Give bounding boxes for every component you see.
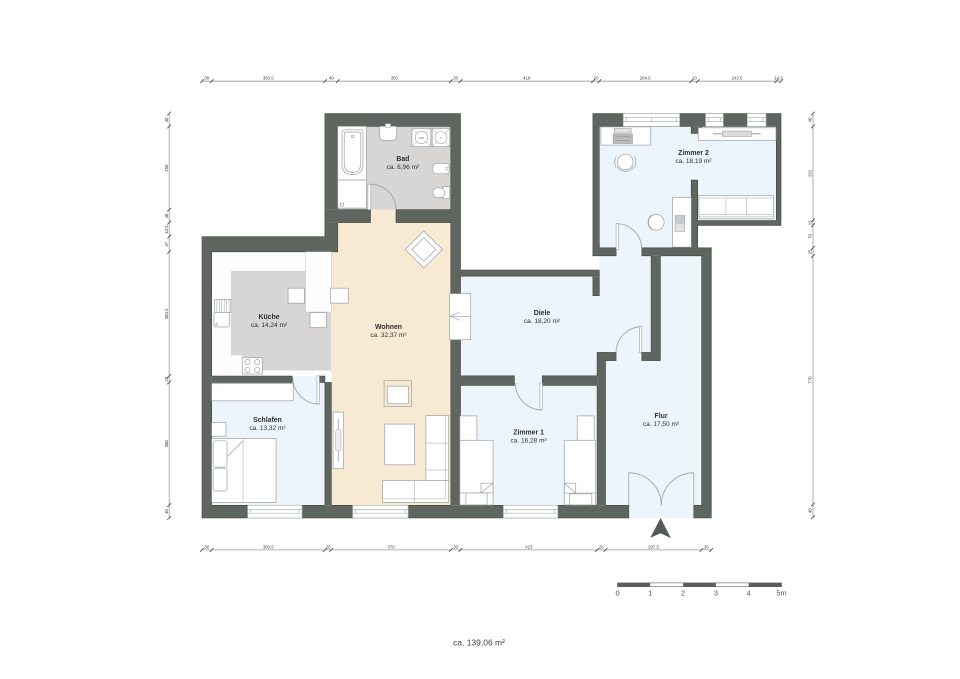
svg-text:30: 30	[453, 76, 458, 81]
svg-text:Flur: Flur	[654, 413, 667, 420]
svg-text:2: 2	[681, 589, 685, 598]
svg-text:291: 291	[807, 169, 812, 177]
svg-text:26: 26	[599, 544, 604, 549]
svg-text:30: 30	[704, 544, 709, 549]
svg-text:30: 30	[204, 76, 209, 81]
svg-text:20: 20	[692, 76, 697, 81]
svg-text:70: 70	[807, 234, 812, 239]
svg-text:ca. 14,24 m²: ca. 14,24 m²	[251, 322, 288, 329]
svg-text:Zimmer 1: Zimmer 1	[513, 430, 544, 437]
svg-text:350: 350	[391, 76, 399, 81]
svg-text:ca. 13,32 m²: ca. 13,32 m²	[249, 425, 286, 432]
svg-text:40: 40	[807, 117, 812, 122]
svg-text:ca. 17,50 m²: ca. 17,50 m²	[643, 421, 680, 428]
svg-text:40: 40	[807, 508, 812, 513]
svg-text:Bad: Bad	[396, 156, 409, 163]
svg-text:Zimmer 2: Zimmer 2	[678, 150, 709, 157]
svg-text:20: 20	[594, 76, 599, 81]
svg-text:40: 40	[164, 509, 169, 514]
svg-text:370: 370	[388, 544, 396, 549]
svg-text:423: 423	[525, 544, 533, 549]
svg-text:43.5: 43.5	[164, 225, 169, 234]
svg-text:25: 25	[807, 249, 812, 254]
svg-text:20: 20	[326, 544, 331, 549]
svg-text:380: 380	[164, 440, 169, 448]
svg-text:30: 30	[453, 544, 458, 549]
svg-text:T: T	[440, 136, 442, 140]
svg-text:297.5: 297.5	[648, 544, 659, 549]
svg-text:40: 40	[164, 117, 169, 122]
svg-text:384.5: 384.5	[164, 308, 169, 319]
svg-text:5m: 5m	[776, 589, 786, 598]
svg-text:0: 0	[615, 589, 619, 598]
svg-text:ca. 16,28 m²: ca. 16,28 m²	[511, 438, 548, 445]
svg-text:ca. 32,37 m²: ca. 32,37 m²	[370, 332, 407, 339]
svg-text:410: 410	[523, 76, 531, 81]
svg-text:243.5: 243.5	[732, 76, 743, 81]
svg-text:Schlafen: Schlafen	[253, 417, 282, 424]
svg-text:Wohnen: Wohnen	[375, 324, 402, 331]
svg-text:258: 258	[164, 164, 169, 172]
svg-text:1: 1	[648, 589, 652, 598]
svg-text:40: 40	[329, 76, 334, 81]
svg-text:40: 40	[164, 213, 169, 218]
svg-text:ca. 18,20 m²: ca. 18,20 m²	[524, 318, 561, 325]
svg-text:ca. 18,19 m²: ca. 18,19 m²	[675, 158, 712, 165]
svg-text:4: 4	[747, 589, 751, 598]
svg-text:Küche: Küche	[258, 314, 279, 321]
svg-text:WM: WM	[419, 136, 425, 140]
svg-text:ca. 8,96 m²: ca. 8,96 m²	[387, 164, 420, 171]
svg-text:30: 30	[204, 544, 209, 549]
svg-text:770: 770	[807, 376, 812, 384]
svg-text:14.5: 14.5	[774, 76, 783, 81]
svg-text:15: 15	[807, 220, 812, 225]
svg-text:3: 3	[714, 589, 718, 598]
svg-text:ca. 139,06 m²: ca. 139,06 m²	[453, 637, 505, 647]
svg-text:20: 20	[164, 376, 169, 381]
svg-text:47: 47	[164, 241, 169, 246]
svg-text:Diele: Diele	[534, 310, 551, 317]
svg-text:350.5: 350.5	[263, 76, 274, 81]
svg-text:350.5: 350.5	[263, 544, 274, 549]
svg-text:284.5: 284.5	[640, 76, 651, 81]
